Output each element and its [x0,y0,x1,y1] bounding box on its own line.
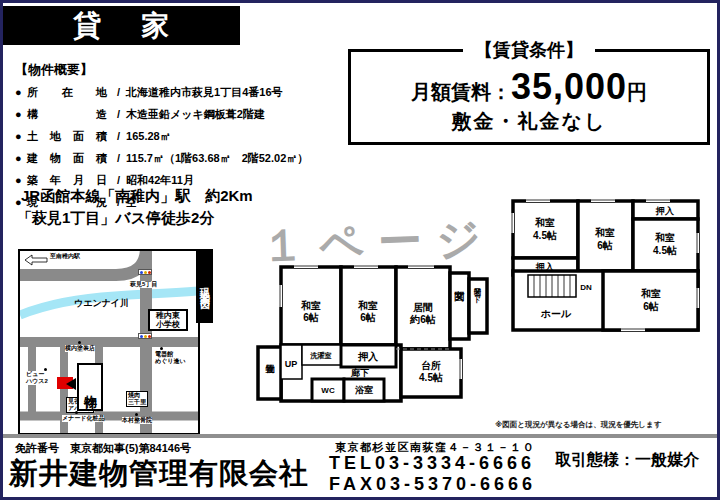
room-genkan-hood-label: 玄関フード [472,283,482,299]
overview-label: 所在地 [27,85,107,100]
traffic-dot-red [148,335,151,338]
room-oshiire-label: 押入 [357,351,379,362]
overview-row-structure: ● 構造 / 木造亜鉛メッキ鋼板葺2階建 [15,107,345,122]
disclaimer-note: ※図面と現況が異なる場合は、現況を優先します [495,420,661,430]
map-graphics [20,251,198,433]
room-washitsu-tl-label: 和室 [534,217,555,228]
map-strip-title: 現地案内図 [196,249,213,323]
traffic-dot-yellow [144,271,147,274]
map-intersection-label: 萩見5丁目 [130,281,157,288]
room-oshiire-left-label: 押入 [535,262,555,272]
room-bath-label: 浴室 [354,385,373,395]
transaction-type: 取引態様：一般媒介 [555,450,699,471]
floorplan-2f: 和室 4.5帖 押入 和室 6帖 押入 和室 4.5帖 DN ホール 和室 6帖 [506,193,706,335]
poi-line: 三千里 [128,399,146,406]
overview-value: 昭和42年11月 [126,173,194,188]
room-washitsu-mid-size: 6帖 [360,312,376,323]
property-overview-title: 【物件概要】 [15,61,345,79]
stairs-2f [528,275,576,297]
stairs-up-label: UP [285,359,298,369]
poi-line: ビュー [26,371,48,378]
slash-separator: / [117,130,120,142]
poi-dot [160,347,163,350]
room-washitsu-r-label: 和室 [654,232,675,243]
poi-dot [75,411,78,414]
room-washitsu-mid-label: 和室 [357,300,378,311]
map-to-station-label: 至南稚内駅 [50,253,80,260]
room-living-size: 約6帖 [409,314,436,325]
overview-label: 土地面積 [27,129,107,144]
room-laundry-label: 洗濯室 [310,351,332,360]
room-washitsu-tl-size: 4.5帖 [533,230,557,241]
map-poi-menard: メナード化粧品 [62,415,104,422]
map-poi-seikotsuin: 本村整骨院 [122,417,152,424]
map-poi-yakiniku: 焼肉 三千里 [126,391,148,407]
bullet-icon: ● [15,108,27,120]
footer-divider [3,434,717,439]
bullet-icon: ● [15,130,27,142]
page-title-text: 貸 家 [58,7,186,45]
rental-conditions-box: 【賃貸条件】 月額賃料：35,000円 敷金・礼金なし [348,49,710,145]
floorplan-1f: 和室 6帖 和室 6帖 居間 約6帖 UP 洗濯室 押入 廊下 WC 浴室 台所… [256,227,491,407]
poi-line: 電器館 [155,351,186,358]
slash-separator: / [117,152,120,164]
floorplan-2f-drawing: 和室 4.5帖 押入 和室 6帖 押入 和室 4.5帖 DN ホール 和室 6帖 [506,193,706,335]
floorplan-1f-drawing: 和室 6帖 和室 6帖 居間 約6帖 UP 洗濯室 押入 廊下 WC 浴室 台所… [256,227,491,407]
flyer-page: 貸 家 【賃貸条件】 月額賃料：35,000円 敷金・礼金なし 【物件概要】 ●… [0,0,720,500]
overview-row-land-area: ● 土地面積 / 165.28㎡ [15,129,345,144]
hallway-label: 廊下 [350,368,370,378]
room-oshiire-top-label: 押入 [655,206,675,216]
room-washitsu-left-size: 6帖 [303,312,319,323]
overview-value: 木造亜鉛メッキ鋼板葺2階建 [126,107,265,122]
deposit-note: 敷金・礼金なし [351,108,707,135]
rent-unit: 円 [627,81,647,103]
school-line2: 小学校 [150,320,186,329]
poi-line: ハウス2 [26,378,48,385]
room-wc-label: WC [321,386,335,395]
rent-label: 月額賃料： [411,81,511,103]
room-washitsu-br-label: 和室 [640,288,661,299]
property-callout: 物件 [77,363,103,411]
overview-value: 115.7㎡（1階63.68㎡ 2階52.02㎡） [126,151,308,166]
bullet-icon: ● [15,174,27,186]
rental-conditions-title: 【賃貸条件】 [463,38,595,62]
traffic-dot-red [148,271,151,274]
road-top [20,251,146,275]
slash-separator: / [117,174,120,186]
poi-dot [78,341,81,344]
traffic-light-icon [138,333,152,339]
traffic-dot-yellow [144,335,147,338]
property-arrow-icon [66,378,76,390]
access-bus-line: 「萩見1丁目」バス停徒歩2分 [17,209,214,228]
hall-label: ホール [540,308,572,319]
bullet-icon: ● [15,152,27,164]
poi-line: 焼肉 [128,392,146,399]
map-school-label: 稚内東 小学校 [148,309,188,331]
map-river-label: ウエンナイ川 [74,297,129,310]
overview-label: 構造 [27,107,107,122]
map-poi-paint-shop: 横内塗装店 [65,345,95,352]
map-poi-viewhouse: ビュー ハウス2 [26,371,48,385]
access-train-line: JR函館本線「南稚内」駅 約2Km [21,187,253,206]
bullet-icon: ● [15,86,27,98]
fax-number: FAX03-5370-6666 [329,474,536,495]
room-washitsu-br-size: 6帖 [643,301,659,312]
room-washitsu-mid-size: 6帖 [597,240,613,251]
traffic-dot-blue [140,335,143,338]
overview-row-building-area: ● 建物面積 / 115.7㎡（1階63.68㎡ 2階52.02㎡） [15,151,345,166]
poi-dot [135,413,138,416]
overview-row-built-date: ● 築年月日 / 昭和42年11月 [15,173,345,188]
monthly-rent-line: 月額賃料：35,000円 [351,66,707,108]
overview-value: 北海道稚内市萩見1丁目4番16号 [126,85,282,100]
phone-number: TEL03-3334-6666 [329,453,535,474]
rent-value: 35,000 [511,66,627,107]
room-kitchen-label: 台所 [421,360,441,371]
room-living-label: 居間 [412,302,433,313]
traffic-dot-blue [140,271,143,274]
overview-label: 築年月日 [27,173,107,188]
direction-arrow-icon [25,255,47,265]
room-kitchen-size: 4.5帖 [419,372,443,383]
overview-label: 建物面積 [27,151,107,166]
map-poi-denkikan: 電器館 めぐり逢い [155,351,186,365]
overview-value: 165.28㎡ [126,129,171,144]
room-washitsu-left-label: 和室 [300,300,321,311]
room-washitsu-mid-label: 和室 [594,227,615,238]
slash-separator: / [117,86,120,98]
stairs-down-label: DN [580,283,592,292]
room-washitsu-r-size: 4.5帖 [653,245,677,256]
poi-line: めぐり逢い [155,358,186,365]
traffic-light-icon [138,269,152,275]
overview-row-location: ● 所在地 / 北海道稚内市萩見1丁目4番16号 [15,85,345,100]
slash-separator: / [117,108,120,120]
location-map: 至南稚内駅 萩見5丁目 ウエンナイ川 稚内東 小学校 横内塗装店 ビュー ハウス… [18,249,200,435]
page-title: 貸 家 [3,6,240,45]
company-name: 新井建物管理有限会社 [9,454,309,494]
school-line1: 稚内東 [150,311,186,320]
